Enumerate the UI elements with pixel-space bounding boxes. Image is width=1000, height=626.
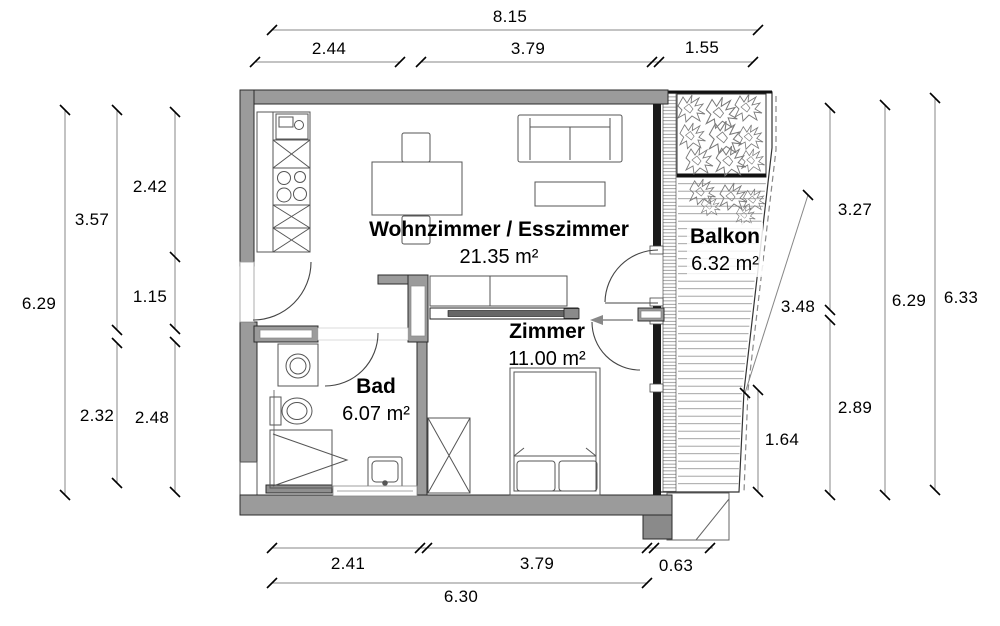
entrance-door-swing — [253, 262, 311, 320]
bed-symbol — [510, 368, 600, 495]
dim-top-seg2: 3.79 — [511, 39, 545, 59]
washing-machine-symbol — [278, 344, 318, 386]
balcony-area: 6.32 m² — [687, 251, 763, 277]
dim-bottom-seg2: 3.79 — [520, 554, 554, 574]
wall-bottom — [240, 495, 672, 515]
dim-left-inner-upper: 2.42 — [133, 177, 167, 197]
dim-right-overall-outer: 6.33 — [944, 288, 978, 308]
dim-bottom-seg3: 0.63 — [659, 556, 693, 576]
shower-symbol — [270, 390, 347, 488]
dim-bottom-total: 6.30 — [444, 587, 478, 607]
bathroom-opening — [318, 328, 408, 340]
dim-left-inner-mid: 1.15 — [133, 287, 167, 307]
kitchen-counter-symbol — [257, 112, 310, 252]
bathroom-sink-symbol — [368, 457, 402, 490]
bathroom-label: Bad 6.07 m² — [342, 373, 410, 427]
bedroom-label: Zimmer 11.00 m² — [508, 318, 585, 372]
wall-left-shaft — [240, 462, 257, 495]
dim-right-overall-inner: 6.29 — [892, 291, 926, 311]
entrance-opening — [240, 262, 254, 322]
balcony-wall-hatch — [663, 93, 676, 492]
wall-hall-stub-slot — [411, 286, 425, 336]
bathroom-area: 6.07 m² — [342, 401, 410, 427]
bedroom-name: Zimmer — [508, 318, 585, 346]
dim-left-mid-upper: 3.57 — [75, 210, 109, 230]
sideboard-symbol — [430, 276, 567, 306]
dim-right-inner-lower: 2.89 — [838, 398, 872, 418]
wall-left-lower — [240, 322, 257, 462]
sofa-symbol — [518, 115, 622, 162]
balcony-structure — [661, 92, 776, 540]
bedroom-area: 11.00 m² — [508, 346, 585, 372]
slide-direction-arrow-icon — [590, 315, 633, 325]
dim-bottom-seg1: 2.41 — [331, 554, 365, 574]
wall-top — [240, 90, 668, 104]
window-wall-east — [650, 104, 663, 495]
dim-left-overall: 6.29 — [22, 294, 56, 314]
living-room-label: Wohnzimmer / Esszimmer 21.35 m² — [369, 216, 629, 270]
coffee-table-symbol — [535, 182, 605, 206]
wall-left-upper — [240, 90, 254, 266]
bedroom-door-swing — [592, 322, 640, 370]
dim-right-inner-upper: 3.27 — [838, 200, 872, 220]
dim-left-inner-lower: 2.48 — [135, 408, 169, 428]
dim-left-mid-lower: 2.32 — [80, 406, 114, 426]
kitchen-stove — [277, 172, 307, 203]
exterior-step — [667, 493, 729, 540]
living-room-area: 21.35 m² — [369, 244, 629, 270]
exterior-pillar — [643, 515, 672, 539]
toilet-symbol — [270, 397, 312, 425]
wall-bath-bedroom — [417, 342, 427, 495]
balcony-label: Balkon 6.32 m² — [687, 223, 763, 277]
wardrobe-symbol — [428, 418, 470, 493]
dim-right-balcony-edge: 1.64 — [765, 430, 799, 450]
sliding-door-panel — [448, 311, 570, 317]
wall-bath-north-niche — [260, 330, 312, 338]
dim-top-seg1: 2.44 — [312, 39, 346, 59]
dim-top-total: 8.15 — [493, 7, 527, 27]
living-room-name: Wohnzimmer / Esszimmer — [369, 216, 629, 244]
dim-top-seg3: 1.55 — [685, 38, 719, 58]
floorplan-page: Wohnzimmer / Esszimmer 21.35 m² Balkon 6… — [0, 0, 1000, 626]
wall-shower-stub — [266, 485, 332, 493]
bathroom-name: Bad — [342, 373, 410, 401]
balcony-name: Balkon — [687, 223, 763, 251]
dim-right-balcony-slope: 3.48 — [778, 297, 818, 317]
floorplan-drawing — [0, 0, 1000, 626]
